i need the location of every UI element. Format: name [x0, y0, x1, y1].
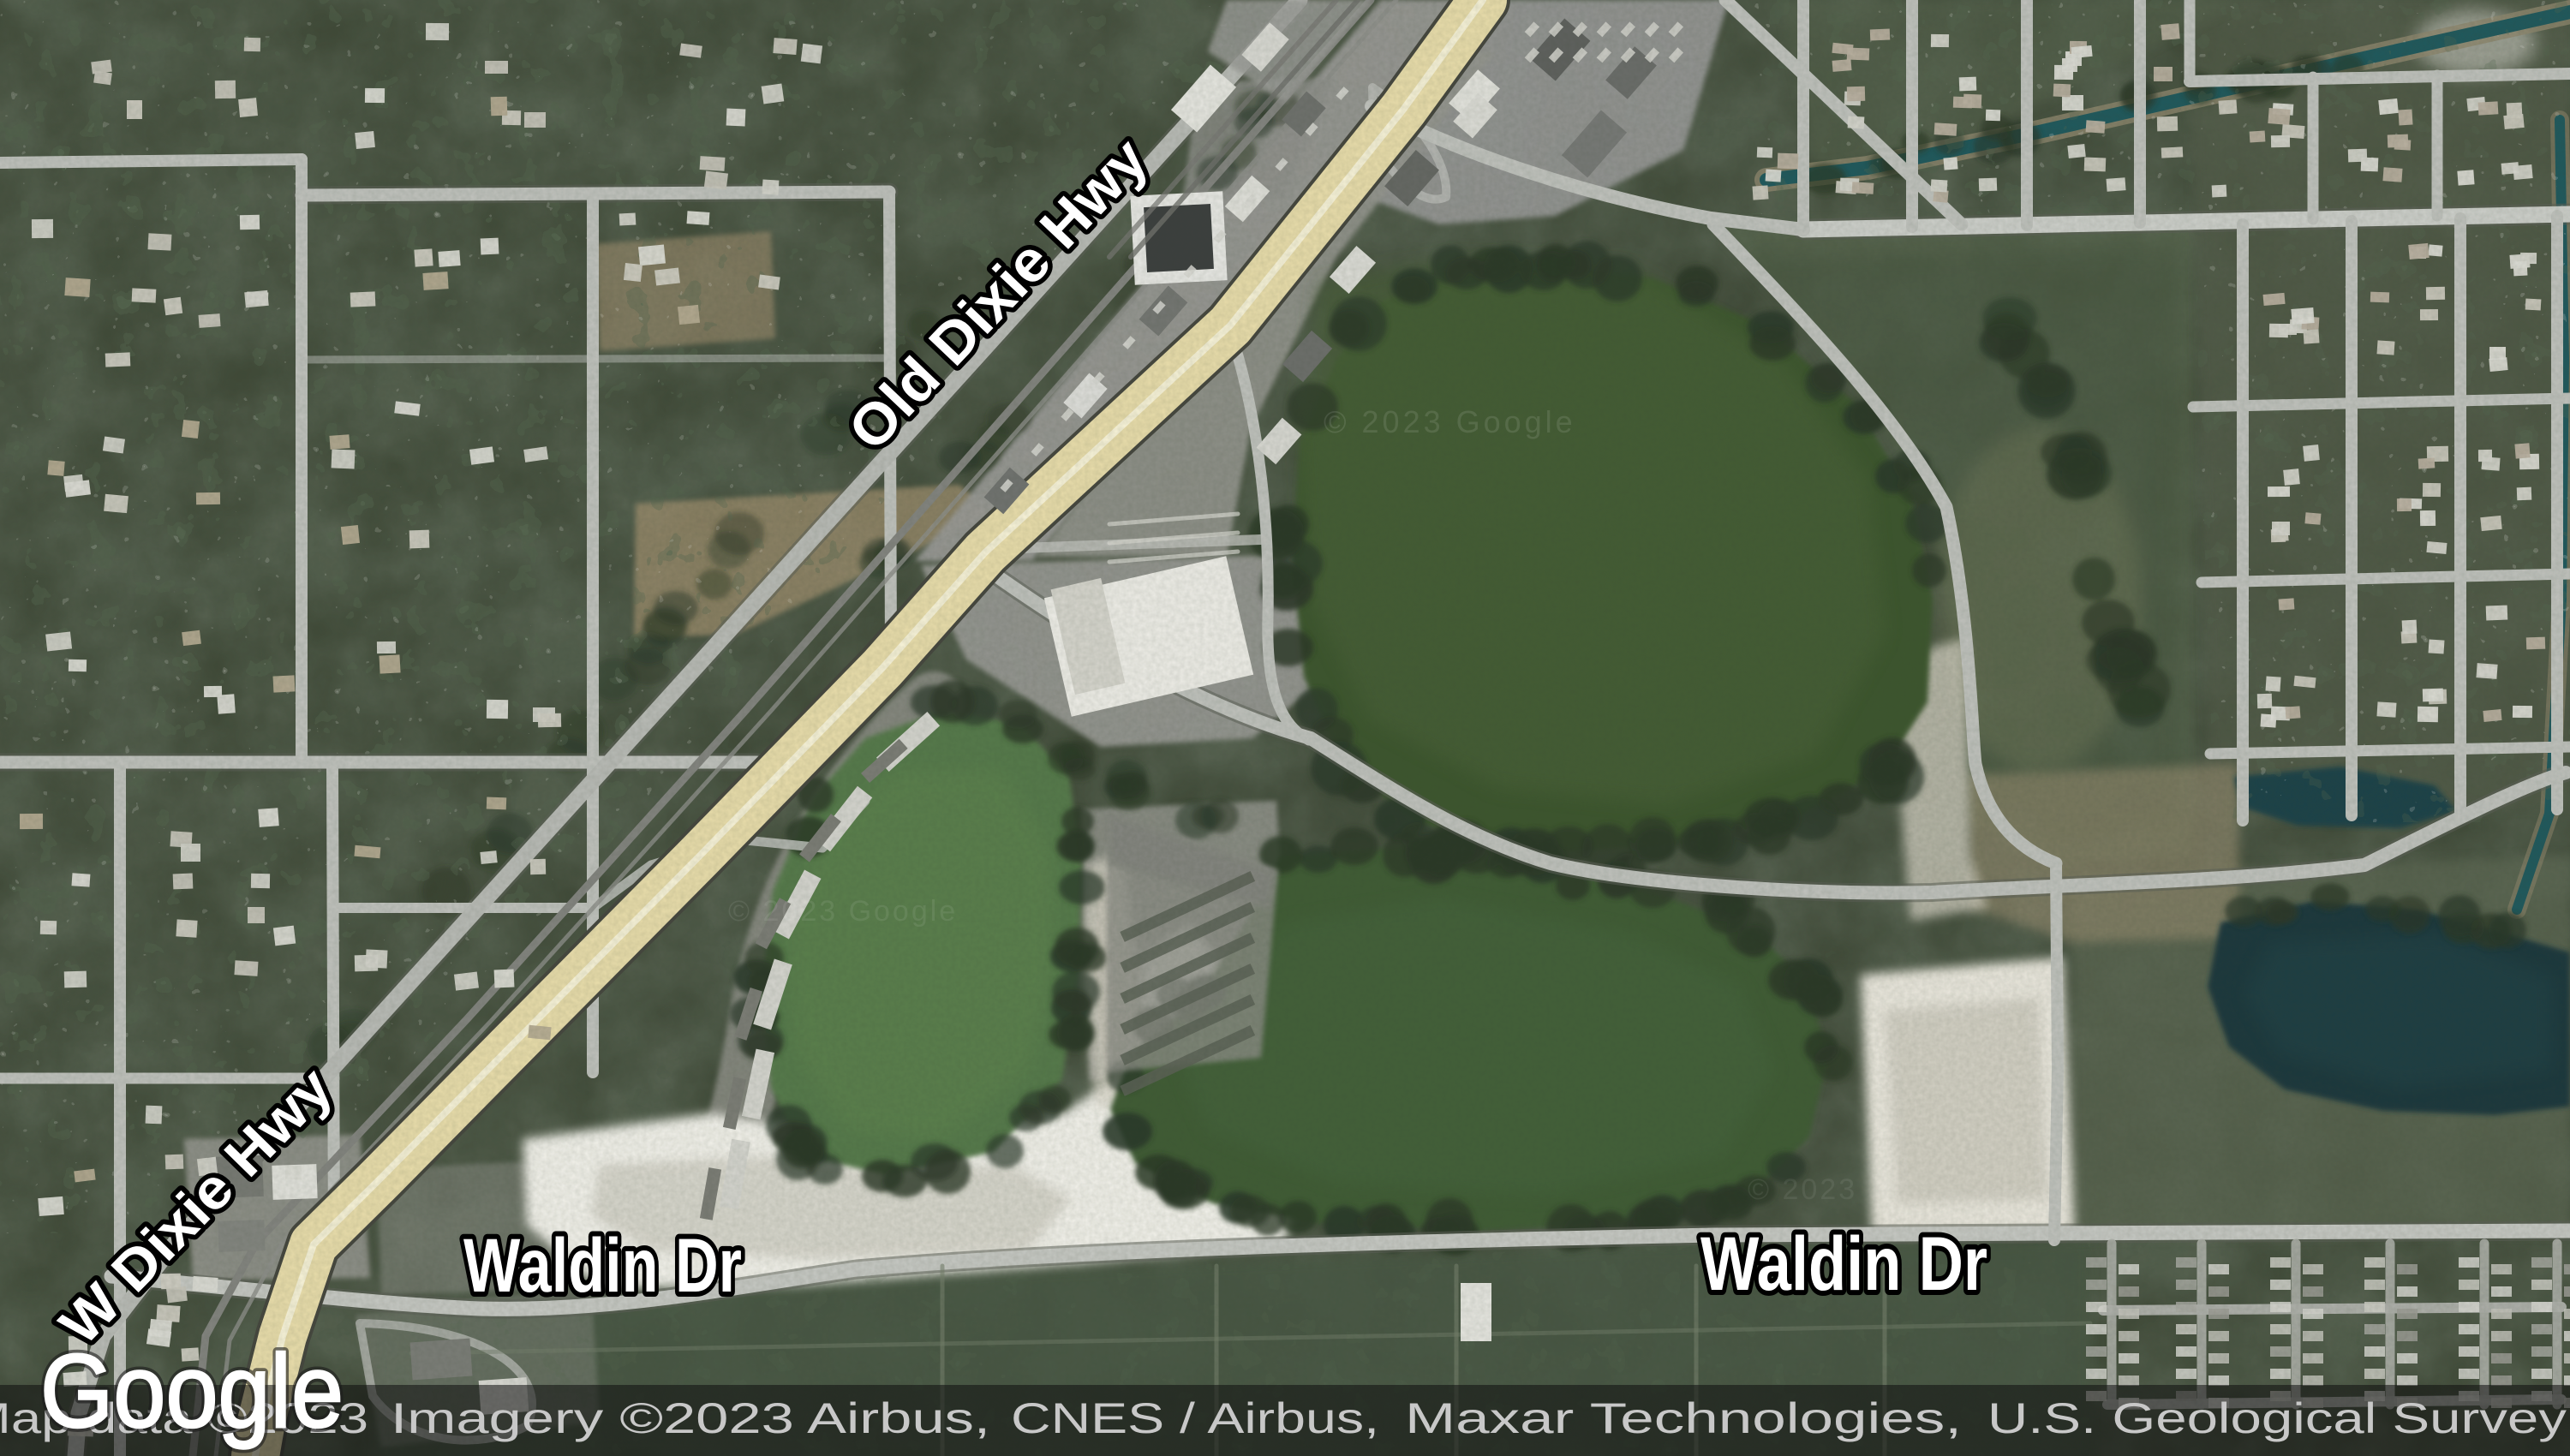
svg-text:U.S. Geological Survey: U.S. Geological Survey: [1987, 1394, 2567, 1442]
svg-text:Google: Google: [40, 1333, 344, 1449]
svg-text:© 2023 Google: © 2023 Google: [728, 895, 958, 928]
svg-text:Maxar Technologies,: Maxar Technologies,: [1405, 1394, 1962, 1442]
svg-text:Waldin Dr: Waldin Dr: [463, 1222, 742, 1308]
svg-text:© 2023 Google: © 2023 Google: [1324, 404, 1576, 439]
svg-text:CNES / Airbus,: CNES / Airbus,: [1011, 1394, 1379, 1442]
svg-text:Imagery ©2023 Airbus,: Imagery ©2023 Airbus,: [391, 1394, 990, 1442]
svg-text:Waldin Dr: Waldin Dr: [1700, 1220, 1987, 1306]
svg-text:© 2023: © 2023: [1748, 1173, 1857, 1206]
